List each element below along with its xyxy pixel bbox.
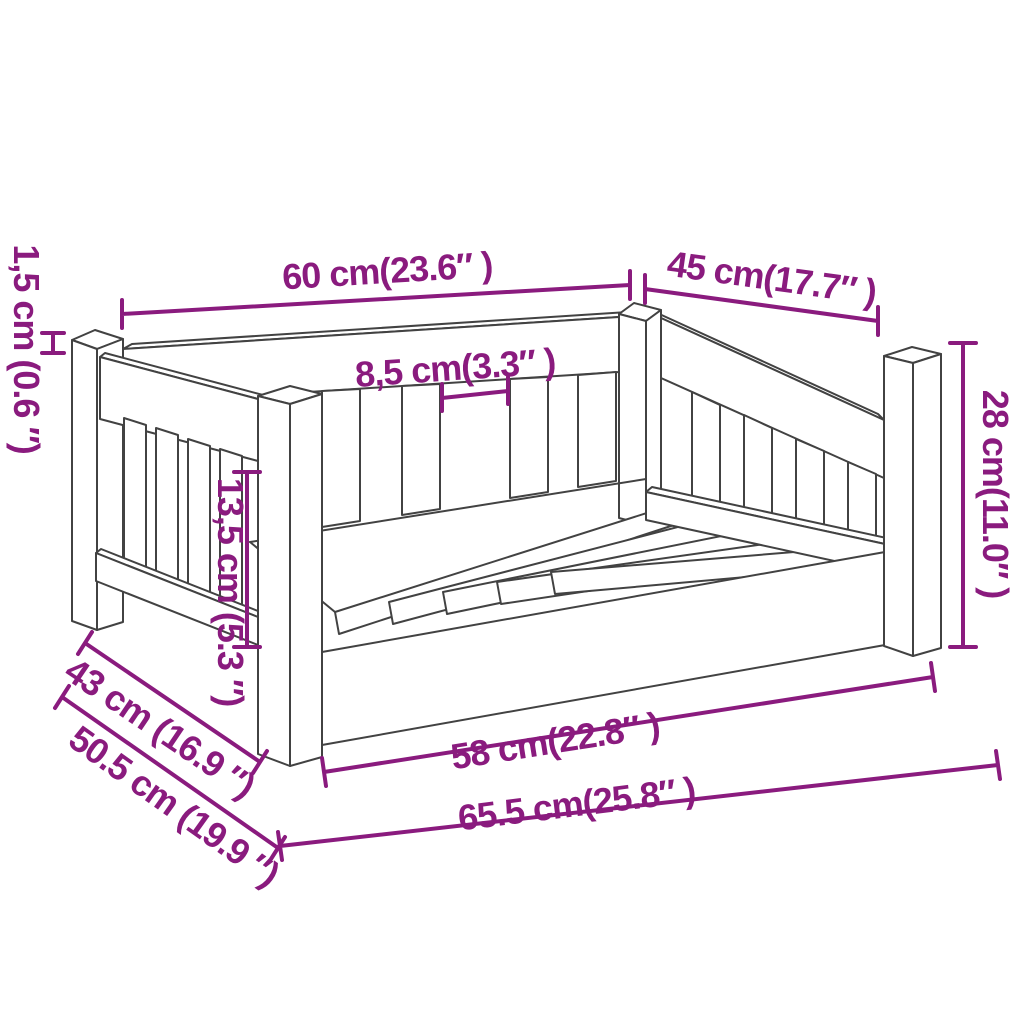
left-slat <box>188 439 210 598</box>
dimension-label: 13,5 cm (5.3 ″) <box>210 478 251 706</box>
dimension-label: 28 cm(11.0″ ) <box>975 390 1016 598</box>
dimension-label: 65.5 cm(25.8″ ) <box>456 769 698 839</box>
back-right-post <box>619 314 646 525</box>
dimension-slat-height-13-5cm: 13,5 cm (5.3 ″) <box>210 472 260 706</box>
dimension-back-width-60cm: 60 cm(23.6″ ) <box>122 244 630 328</box>
dimension-label: 1,5 cm (0.6 ″) <box>6 244 47 453</box>
front-left-post <box>258 396 290 766</box>
front-right-post-side <box>913 354 941 656</box>
left-slat <box>124 418 146 573</box>
back-slat <box>402 384 440 515</box>
left-slat <box>156 428 178 585</box>
dimension-side-width-45cm: 45 cm(17.7″ ) <box>645 243 879 335</box>
right-slat <box>796 439 824 531</box>
back-slat <box>510 377 548 498</box>
front-right-post <box>884 356 913 656</box>
right-slat <box>744 415 772 520</box>
back-slat <box>322 389 360 527</box>
dimension-height-28cm: 28 cm(11.0″ ) <box>950 343 1016 647</box>
dimension-label: 60 cm(23.6″ ) <box>281 244 493 298</box>
dimension-label: 45 cm(17.7″ ) <box>665 243 879 313</box>
back-left-post <box>72 340 97 630</box>
front-left-post-front <box>290 394 322 766</box>
dimension-board-offset-1-5cm: 1,5 cm (0.6 ″) <box>6 244 64 453</box>
drawing-canvas: 60 cm(23.6″ ) 45 cm(17.7″ ) 8,5 cm(3.3″ … <box>0 0 1024 1024</box>
dimension-outer-length-65-5cm: 65.5 cm(25.8″ ) <box>278 751 1000 860</box>
back-slat <box>578 372 616 487</box>
dog-bed-technical-drawing: 60 cm(23.6″ ) 45 cm(17.7″ ) 8,5 cm(3.3″ … <box>0 0 1024 1024</box>
right-slat <box>692 392 720 508</box>
dimension-line <box>950 343 976 647</box>
